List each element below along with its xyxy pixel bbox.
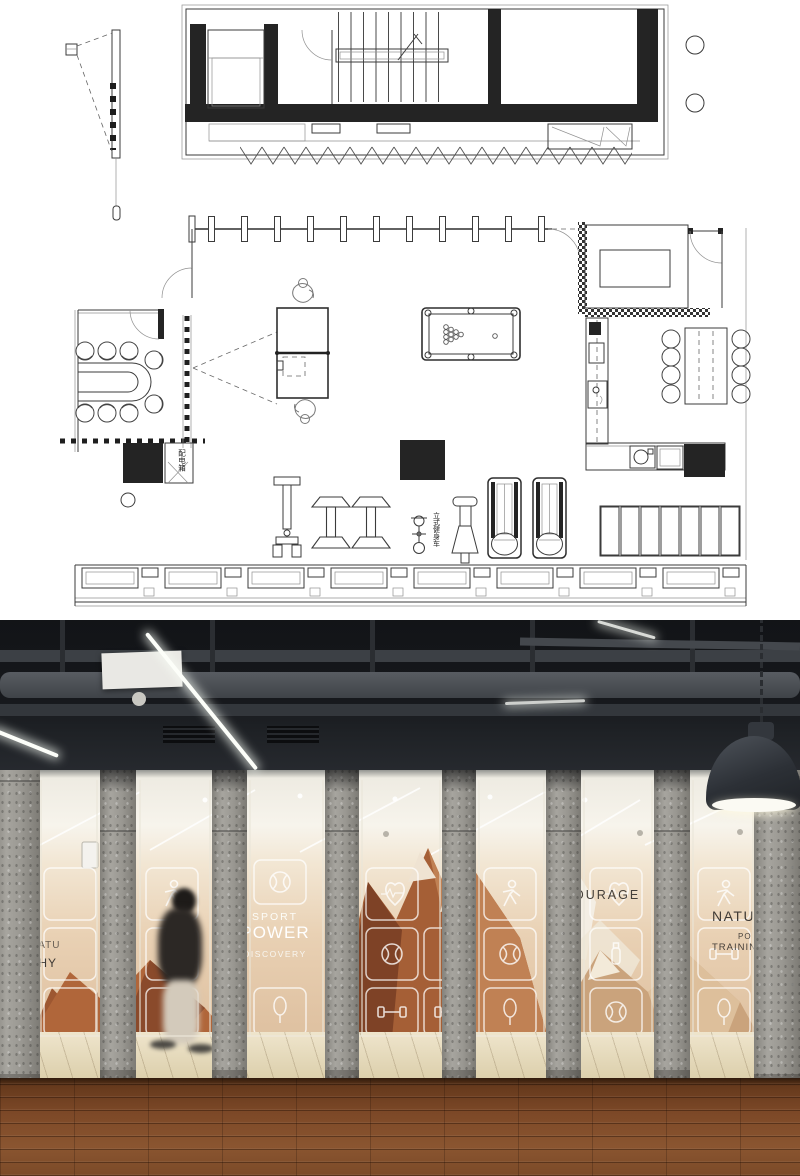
person-figure — [293, 279, 314, 303]
glass-frame — [478, 780, 480, 1036]
sprinkler — [132, 692, 146, 706]
air-duct-small — [0, 704, 800, 716]
facade — [75, 565, 746, 606]
floor-plan: 配电箱 — [0, 0, 800, 620]
concrete-column — [325, 758, 359, 1084]
hanger-rod — [370, 620, 375, 672]
upright-bike-label: 立式健身车 — [433, 511, 441, 548]
glass-text-sport: SPORT — [242, 911, 308, 923]
dining-set — [662, 328, 750, 404]
exposed-ceiling — [0, 620, 800, 770]
exercise-bike — [411, 516, 427, 554]
column-circle — [686, 36, 704, 54]
black-block — [400, 440, 445, 480]
hanger-rod — [210, 620, 215, 672]
concrete-column — [212, 758, 247, 1084]
concrete-column — [442, 758, 476, 1084]
ping-pong-table — [275, 279, 330, 424]
stair-core — [182, 5, 704, 166]
person-figure — [295, 400, 316, 424]
vent-grille — [163, 726, 215, 743]
glass-frame — [583, 780, 585, 1036]
pool-table — [422, 308, 520, 360]
glass-frame — [361, 780, 363, 1036]
conference-table — [78, 363, 151, 401]
hatched-wall — [578, 222, 587, 314]
interior-photo: NATU THY SPORT POWER DISCOVERY COURAGE N… — [0, 620, 800, 1176]
sawtooth-detail — [240, 146, 632, 166]
glass-frame — [96, 780, 98, 1036]
projector-line — [193, 368, 277, 404]
treadmill — [533, 478, 566, 558]
countertop-black — [684, 444, 725, 477]
glass-frame — [651, 780, 653, 1036]
glass-frame — [209, 780, 211, 1036]
pipe — [520, 638, 800, 651]
lamp-glow — [712, 798, 796, 812]
weight-bench — [312, 497, 350, 548]
glass-frame — [543, 780, 545, 1036]
projector-line — [193, 332, 277, 368]
gym-equipment: 立式健身车 — [273, 440, 566, 563]
lockers — [600, 506, 740, 556]
glass-frame — [322, 780, 324, 1036]
glass-frame — [692, 780, 694, 1036]
glass-frame — [249, 780, 251, 1036]
glass-frame — [40, 780, 42, 1036]
glass-text-discovery: DISCOVERY — [236, 949, 314, 959]
left-wall-elements — [66, 30, 120, 220]
treadmill — [488, 478, 521, 558]
kitchen-counter — [586, 318, 725, 477]
concrete-column — [546, 758, 581, 1084]
person-torso — [158, 908, 202, 988]
electrical-room — [123, 443, 163, 483]
weight-bench — [352, 497, 390, 548]
glass-frame — [439, 780, 441, 1036]
hanger-rod — [60, 620, 65, 672]
stairs — [338, 12, 448, 102]
column-circle — [686, 94, 704, 112]
distribution-box-label: 配电箱 — [177, 449, 186, 473]
concrete-column — [654, 758, 690, 1084]
meeting-room: 配电箱 — [60, 309, 277, 507]
hanger-rod — [530, 620, 535, 672]
glass-text-nature: NATU — [712, 908, 755, 924]
ceiling-light-lines — [40, 788, 745, 855]
concrete-column — [100, 758, 136, 1084]
person-shoe — [188, 1044, 214, 1053]
wood-floor — [0, 1078, 800, 1176]
person-shoe — [150, 1040, 176, 1049]
vent-grille — [267, 726, 319, 743]
page: 配电箱 — [0, 0, 800, 1176]
glass-frame — [139, 780, 141, 1036]
glass-text-po: PO — [738, 932, 752, 941]
cable-machine — [273, 477, 301, 557]
partition-wall — [162, 216, 587, 314]
squat-machine — [452, 497, 478, 563]
access-panel — [101, 651, 182, 690]
glass-bottom-rail — [36, 1035, 758, 1037]
